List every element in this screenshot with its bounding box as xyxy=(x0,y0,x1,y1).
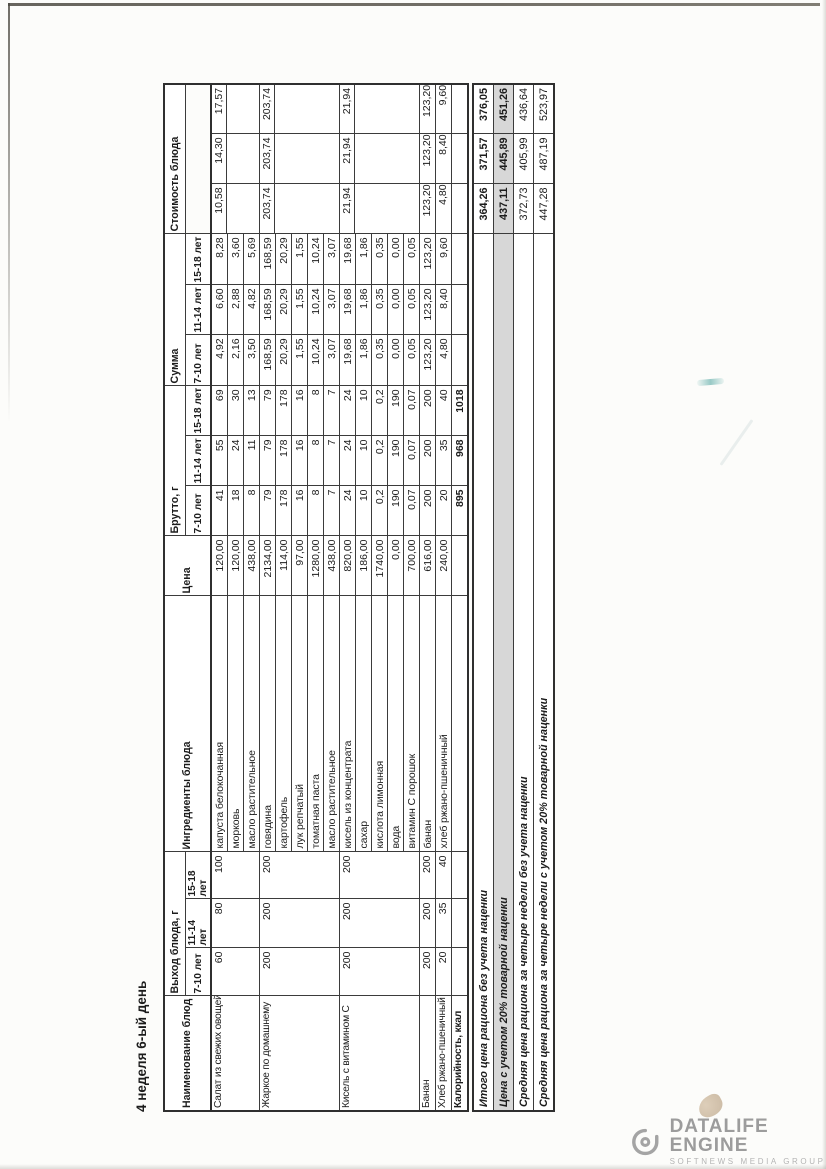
scan-edge-top xyxy=(8,3,820,6)
dish-output-value: 200 xyxy=(420,948,436,996)
ingredient-name: лук репчатый xyxy=(292,596,308,852)
header-age-col: 15-18 лет xyxy=(186,386,212,436)
summa-value: 168,59 xyxy=(260,285,276,335)
dish-output-value: 200 xyxy=(340,948,420,996)
brutto-value: 79 xyxy=(260,386,276,436)
dish-cost-value: 10,58 xyxy=(211,184,260,234)
brutto-value: 178 xyxy=(276,386,292,436)
dish-cost-value: 21,94 xyxy=(340,134,420,184)
dish-name: Хлеб ржано-пшеничный xyxy=(436,996,452,1111)
ingredient-price: 120,00 xyxy=(211,536,228,596)
brutto-value: 16 xyxy=(292,386,308,436)
summa-value: 6,60 xyxy=(211,285,228,335)
ingredient-name: томатная паста xyxy=(308,596,324,852)
header-age-col: 7-10 лет xyxy=(186,948,212,996)
empty-cell xyxy=(452,536,469,596)
brutto-value: 8 xyxy=(308,486,324,536)
ingredient-name: хлеб ржано-пшеничный xyxy=(436,596,452,852)
brutto-value: 24 xyxy=(340,386,356,436)
summa-value: 3,50 xyxy=(244,335,260,386)
header-price: Цена xyxy=(164,536,211,596)
brutto-value: 69 xyxy=(211,386,228,436)
dish-cost-box: 21,94 xyxy=(340,134,355,183)
summary-row: Итого цена рациона без учета наценки364,… xyxy=(473,84,494,1111)
summa-value: 0,35 xyxy=(372,285,388,335)
summary-value: 372,73 xyxy=(514,184,534,234)
ingredient-name: кислота лимонная xyxy=(372,596,388,852)
header-age-col: 15-18 лет xyxy=(186,852,212,899)
dish-cost-value: 17,57 xyxy=(211,84,260,134)
dish-cost-box: 14,30 xyxy=(212,134,227,183)
dish-cost-value: 123,20 xyxy=(420,134,436,184)
dish-output-value: 200 xyxy=(420,852,436,899)
empty-cell xyxy=(452,285,469,335)
brutto-value: 16 xyxy=(292,486,308,536)
summa-value: 2,88 xyxy=(228,285,244,335)
summa-value: 1,55 xyxy=(292,285,308,335)
ingredient-name: сахар xyxy=(356,596,372,852)
dish-output-value: 35 xyxy=(436,899,452,948)
table-row: Жаркое по домашнему200200200говядина2134… xyxy=(260,84,276,1111)
brutto-value: 55 xyxy=(211,436,228,486)
summa-value: 0,05 xyxy=(404,335,420,386)
ingredient-price: 438,00 xyxy=(244,536,260,596)
brutto-value: 178 xyxy=(276,436,292,486)
dish-output-value: 100 xyxy=(211,852,260,899)
dish-name: Банан xyxy=(420,996,436,1111)
summa-value: 3,60 xyxy=(228,234,244,285)
header-name: Наименование блюд xyxy=(164,996,211,1111)
brutto-value: 40 xyxy=(436,386,452,436)
ingredient-name: кисель из концентрата xyxy=(340,596,356,852)
empty-cell xyxy=(452,899,469,948)
ingredient-name: капуста белокочанная xyxy=(211,596,228,852)
header-age-col: 15-18 лет xyxy=(186,234,212,285)
ingredient-name: говядина xyxy=(260,596,276,852)
summary-row: Средняя цена рациона за четыре недели бе… xyxy=(514,84,534,1111)
ingredient-price: 1740,00 xyxy=(372,536,388,596)
brutto-value: 10 xyxy=(356,386,372,436)
ingredient-name: банан xyxy=(420,596,436,852)
summa-value: 3,07 xyxy=(324,234,340,285)
scan-smudge-teal xyxy=(697,378,724,386)
summa-value: 10,24 xyxy=(308,335,324,386)
summary-value: 437,11 xyxy=(494,184,514,234)
ingredient-price: 0,00 xyxy=(388,536,404,596)
dish-cost-box: 203,74 xyxy=(260,184,275,233)
dish-name: Жаркое по домашнему xyxy=(260,996,340,1111)
brutto-value: 24 xyxy=(340,436,356,486)
ingredient-price: 700,00 xyxy=(404,536,420,596)
brutto-value: 190 xyxy=(388,486,404,536)
dish-cost-box: 17,57 xyxy=(212,85,227,134)
header-ingredients: Ингредиенты блюда xyxy=(164,596,211,852)
summa-value: 123,20 xyxy=(420,234,436,285)
brutto-value: 10 xyxy=(356,436,372,486)
ingredient-price: 1280,00 xyxy=(308,536,324,596)
ingredient-price: 186,00 xyxy=(356,536,372,596)
dish-output-value: 200 xyxy=(340,899,420,948)
summary-value: 436,64 xyxy=(514,84,534,134)
ingredient-name: вода xyxy=(388,596,404,852)
dish-output-value: 20 xyxy=(436,948,452,996)
brutto-value: 7 xyxy=(324,386,340,436)
scan-edge-right xyxy=(822,0,826,1169)
dish-cost-value: 8,40 xyxy=(436,134,452,184)
summa-value: 0,00 xyxy=(388,335,404,386)
brutto-value: 8 xyxy=(308,436,324,486)
dish-output-value: 200 xyxy=(340,852,420,899)
brutto-value: 30 xyxy=(228,386,244,436)
summary-table-body: Итого цена рациона без учета наценки364,… xyxy=(473,84,554,1111)
summa-value: 19,68 xyxy=(340,335,356,386)
dish-cost-box: 21,94 xyxy=(340,184,355,233)
brutto-value: 200 xyxy=(420,386,436,436)
header-age-col: 11-14 лет xyxy=(186,436,212,486)
empty-cell xyxy=(452,596,469,852)
brutto-value: 8 xyxy=(308,386,324,436)
summa-value: 3,07 xyxy=(324,285,340,335)
ingredient-price: 2134,00 xyxy=(260,536,276,596)
summary-value: 447,28 xyxy=(534,184,555,234)
summa-value: 4,80 xyxy=(436,335,452,386)
summary-value: 487,19 xyxy=(534,134,555,184)
summary-value: 451,26 xyxy=(494,84,514,134)
dish-name: Салат из свежих овощей xyxy=(211,996,260,1111)
brutto-value: 0,07 xyxy=(404,436,420,486)
summary-value: 523,97 xyxy=(534,84,555,134)
header-output-group: Выход блюда, г xyxy=(164,852,186,996)
brutto-value: 41 xyxy=(211,486,228,536)
summa-value: 123,20 xyxy=(420,285,436,335)
dish-cost-value: 9,60 xyxy=(436,84,452,134)
brutto-value: 11 xyxy=(244,436,260,486)
ingredient-price: 97,00 xyxy=(292,536,308,596)
watermark-subtitle: SOFTNEWS MEDIA GROUP xyxy=(670,1157,826,1166)
summary-table: Итого цена рациона без учета наценки364,… xyxy=(472,83,555,1112)
summa-value: 3,07 xyxy=(324,335,340,386)
dish-output-value: 200 xyxy=(420,899,436,948)
empty-cell xyxy=(452,852,469,899)
summa-value: 0,35 xyxy=(372,234,388,285)
dish-cost-value: 21,94 xyxy=(340,84,420,134)
brutto-value: 7 xyxy=(324,486,340,536)
dish-cost-value: 14,30 xyxy=(211,134,260,184)
dish-output-value: 200 xyxy=(260,852,340,899)
summary-label: Средняя цена рациона за четыре недели с … xyxy=(534,234,555,1111)
summa-value: 0,35 xyxy=(372,335,388,386)
ingredient-price: 438,00 xyxy=(324,536,340,596)
summa-value: 8,40 xyxy=(436,285,452,335)
empty-cell xyxy=(452,234,469,285)
table-row: Хлеб ржано-пшеничный203540хлеб ржано-пше… xyxy=(436,84,452,1111)
summary-label: Итого цена рациона без учета наценки xyxy=(473,234,494,1111)
table-row: Банан200200200банан616,00200200200123,20… xyxy=(420,84,436,1111)
calories-label: Калорийность, ккал xyxy=(452,996,469,1111)
menu-table-header: Наименование блюдВыход блюда, гИнгредиен… xyxy=(164,84,211,1111)
summa-value: 5,69 xyxy=(244,234,260,285)
brutto-value: 10 xyxy=(356,486,372,536)
empty-cell xyxy=(452,335,469,386)
empty-cell xyxy=(452,84,469,134)
calories-row: Калорийность, ккал8959681018 xyxy=(452,84,469,1111)
summary-value: 445,89 xyxy=(494,134,514,184)
brutto-value: 20 xyxy=(436,486,452,536)
calories-value: 1018 xyxy=(452,386,469,436)
header-age-col: 7-10 лет xyxy=(186,335,212,386)
summa-value: 1,86 xyxy=(356,335,372,386)
empty-cell xyxy=(452,184,469,234)
summa-value: 20,29 xyxy=(276,335,292,386)
brutto-value: 178 xyxy=(276,486,292,536)
dish-cost-value: 203,74 xyxy=(260,134,340,184)
brutto-value: 0,2 xyxy=(372,486,388,536)
brutto-value: 0,07 xyxy=(404,486,420,536)
summa-value: 0,05 xyxy=(404,285,420,335)
dish-output-value: 200 xyxy=(260,899,340,948)
calories-value: 895 xyxy=(452,486,469,536)
summa-value: 8,28 xyxy=(211,234,228,285)
brutto-value: 0,07 xyxy=(404,386,420,436)
dish-output-value: 80 xyxy=(211,899,260,948)
summa-value: 10,24 xyxy=(308,234,324,285)
summa-value: 19,68 xyxy=(340,234,356,285)
ingredient-price: 820,00 xyxy=(340,536,356,596)
brutto-value: 79 xyxy=(260,436,276,486)
table-row: Кисель с витамином С200200200кисель из к… xyxy=(340,84,356,1111)
brutto-value: 35 xyxy=(436,436,452,486)
dish-cost-value: 123,20 xyxy=(420,84,436,134)
header-summa-group: Сумма xyxy=(164,234,186,386)
header-cost-group: Стоимость блюда xyxy=(164,84,186,234)
summa-value: 168,59 xyxy=(260,335,276,386)
summa-value: 19,68 xyxy=(340,285,356,335)
dish-output-value: 60 xyxy=(211,948,260,996)
brutto-value: 200 xyxy=(420,486,436,536)
summa-value: 10,24 xyxy=(308,285,324,335)
dish-cost-value: 123,20 xyxy=(420,184,436,234)
summary-row: Средняя цена рациона за четыре недели с … xyxy=(534,84,555,1111)
summary-row: Цена с учетом 20% товарной наценки437,11… xyxy=(494,84,514,1111)
summary-value: 376,05 xyxy=(473,84,494,134)
dish-name: Кисель с витамином С xyxy=(340,996,420,1111)
summa-value: 0,00 xyxy=(388,234,404,285)
dish-cost-value: 203,74 xyxy=(260,184,340,234)
brutto-value: 0,2 xyxy=(372,436,388,486)
brutto-value: 24 xyxy=(340,486,356,536)
summa-value: 1,86 xyxy=(356,234,372,285)
brutto-value: 190 xyxy=(388,386,404,436)
header-age-col: 11-14 лет xyxy=(186,285,212,335)
watermark: DATALIFE ENGINE SOFTNEWS MEDIA GROUP xyxy=(630,1117,826,1166)
summa-value: 4,82 xyxy=(244,285,260,335)
ingredient-price: 120,00 xyxy=(228,536,244,596)
dish-cost-box: 203,74 xyxy=(260,85,275,134)
ingredient-name: картофель xyxy=(276,596,292,852)
dish-cost-value: 4,80 xyxy=(436,184,452,234)
brutto-value: 190 xyxy=(388,436,404,486)
header-age-col: 7-10 лет xyxy=(186,486,212,536)
scan-edge-left xyxy=(8,3,10,423)
summary-label: Средняя цена рациона за четыре недели бе… xyxy=(514,234,534,1111)
summa-value: 123,20 xyxy=(420,335,436,386)
summa-value: 9,60 xyxy=(436,234,452,285)
ingredient-name: витамин С порошок xyxy=(404,596,420,852)
dish-cost-value: 21,94 xyxy=(340,184,420,234)
dish-output-value: 200 xyxy=(260,948,340,996)
brutto-value: 24 xyxy=(228,436,244,486)
summa-value: 1,55 xyxy=(292,234,308,285)
empty-cell xyxy=(452,134,469,184)
summa-value: 1,55 xyxy=(292,335,308,386)
brutto-value: 16 xyxy=(292,436,308,486)
menu-table-body: Салат из свежих овощей6080100капуста бел… xyxy=(211,84,468,1111)
ingredient-name: масло растительное xyxy=(244,596,260,852)
summa-value: 1,86 xyxy=(356,285,372,335)
summa-value: 4,92 xyxy=(211,335,228,386)
summa-value: 2,16 xyxy=(228,335,244,386)
header-age-col: 11-14 лет xyxy=(186,899,212,948)
dish-cost-box: 10,58 xyxy=(212,184,227,233)
brutto-value: 200 xyxy=(420,436,436,486)
document-title: 4 неделя 6-ый день xyxy=(133,85,151,1112)
summa-value: 20,29 xyxy=(276,285,292,335)
table-row: Салат из свежих овощей6080100капуста бел… xyxy=(211,84,228,1111)
dish-cost-value: 203,74 xyxy=(260,84,340,134)
ingredient-price: 616,00 xyxy=(420,536,436,596)
dish-cost-box: 21,94 xyxy=(340,85,355,134)
ingredient-price: 240,00 xyxy=(436,536,452,596)
summary-value: 405,99 xyxy=(514,134,534,184)
scan-smudge-streak xyxy=(719,419,753,466)
menu-table: Наименование блюдВыход блюда, гИнгредиен… xyxy=(163,83,469,1112)
ingredient-name: масло растительное xyxy=(324,596,340,852)
ingredient-name: морковь xyxy=(228,596,244,852)
datalife-eye-icon xyxy=(630,1124,661,1160)
summa-value: 0,05 xyxy=(404,234,420,285)
summa-value: 0,00 xyxy=(388,285,404,335)
brutto-value: 8 xyxy=(244,486,260,536)
summary-label: Цена с учетом 20% товарной наценки xyxy=(494,234,514,1111)
summary-value: 371,57 xyxy=(473,134,494,184)
summa-value: 168,59 xyxy=(260,234,276,285)
brutto-value: 7 xyxy=(324,436,340,486)
ingredient-price: 114,00 xyxy=(276,536,292,596)
brutto-value: 18 xyxy=(228,486,244,536)
empty-cell xyxy=(452,948,469,996)
rotated-document: 4 неделя 6-ый день Наименование блюдВыхо… xyxy=(133,85,555,1112)
summa-value: 20,29 xyxy=(276,234,292,285)
calories-value: 968 xyxy=(452,436,469,486)
summary-value: 364,26 xyxy=(473,184,494,234)
watermark-title: DATALIFE ENGINE xyxy=(670,1117,826,1155)
brutto-value: 13 xyxy=(244,386,260,436)
brutto-value: 79 xyxy=(260,486,276,536)
dish-output-value: 40 xyxy=(436,852,452,899)
header-brutto-group: Брутто, г xyxy=(164,386,186,536)
brutto-value: 0,2 xyxy=(372,386,388,436)
dish-cost-box: 203,74 xyxy=(260,134,275,183)
